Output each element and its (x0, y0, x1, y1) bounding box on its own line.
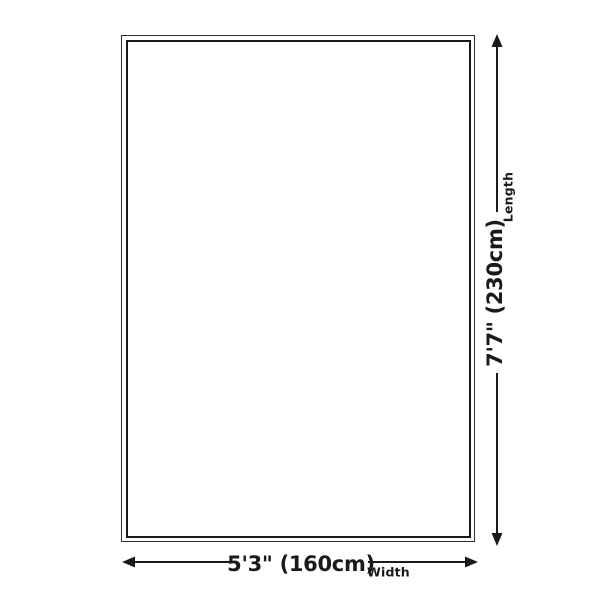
length-arrow-down-icon (490, 373, 504, 546)
product-outline (121, 35, 475, 542)
dimension-diagram: 5'3" (160cm) Width Length 7'7" (230cm) (0, 0, 600, 600)
width-dimension-value: 5'3" (160cm) (227, 552, 375, 576)
width-dimension-label: Width (367, 565, 410, 580)
width-arrow-left-icon (122, 555, 232, 569)
product-outline-inner-border (126, 40, 471, 538)
length-dimension-value: 7'7" (230cm) (483, 219, 507, 367)
length-dimension-label: Length (501, 172, 516, 222)
